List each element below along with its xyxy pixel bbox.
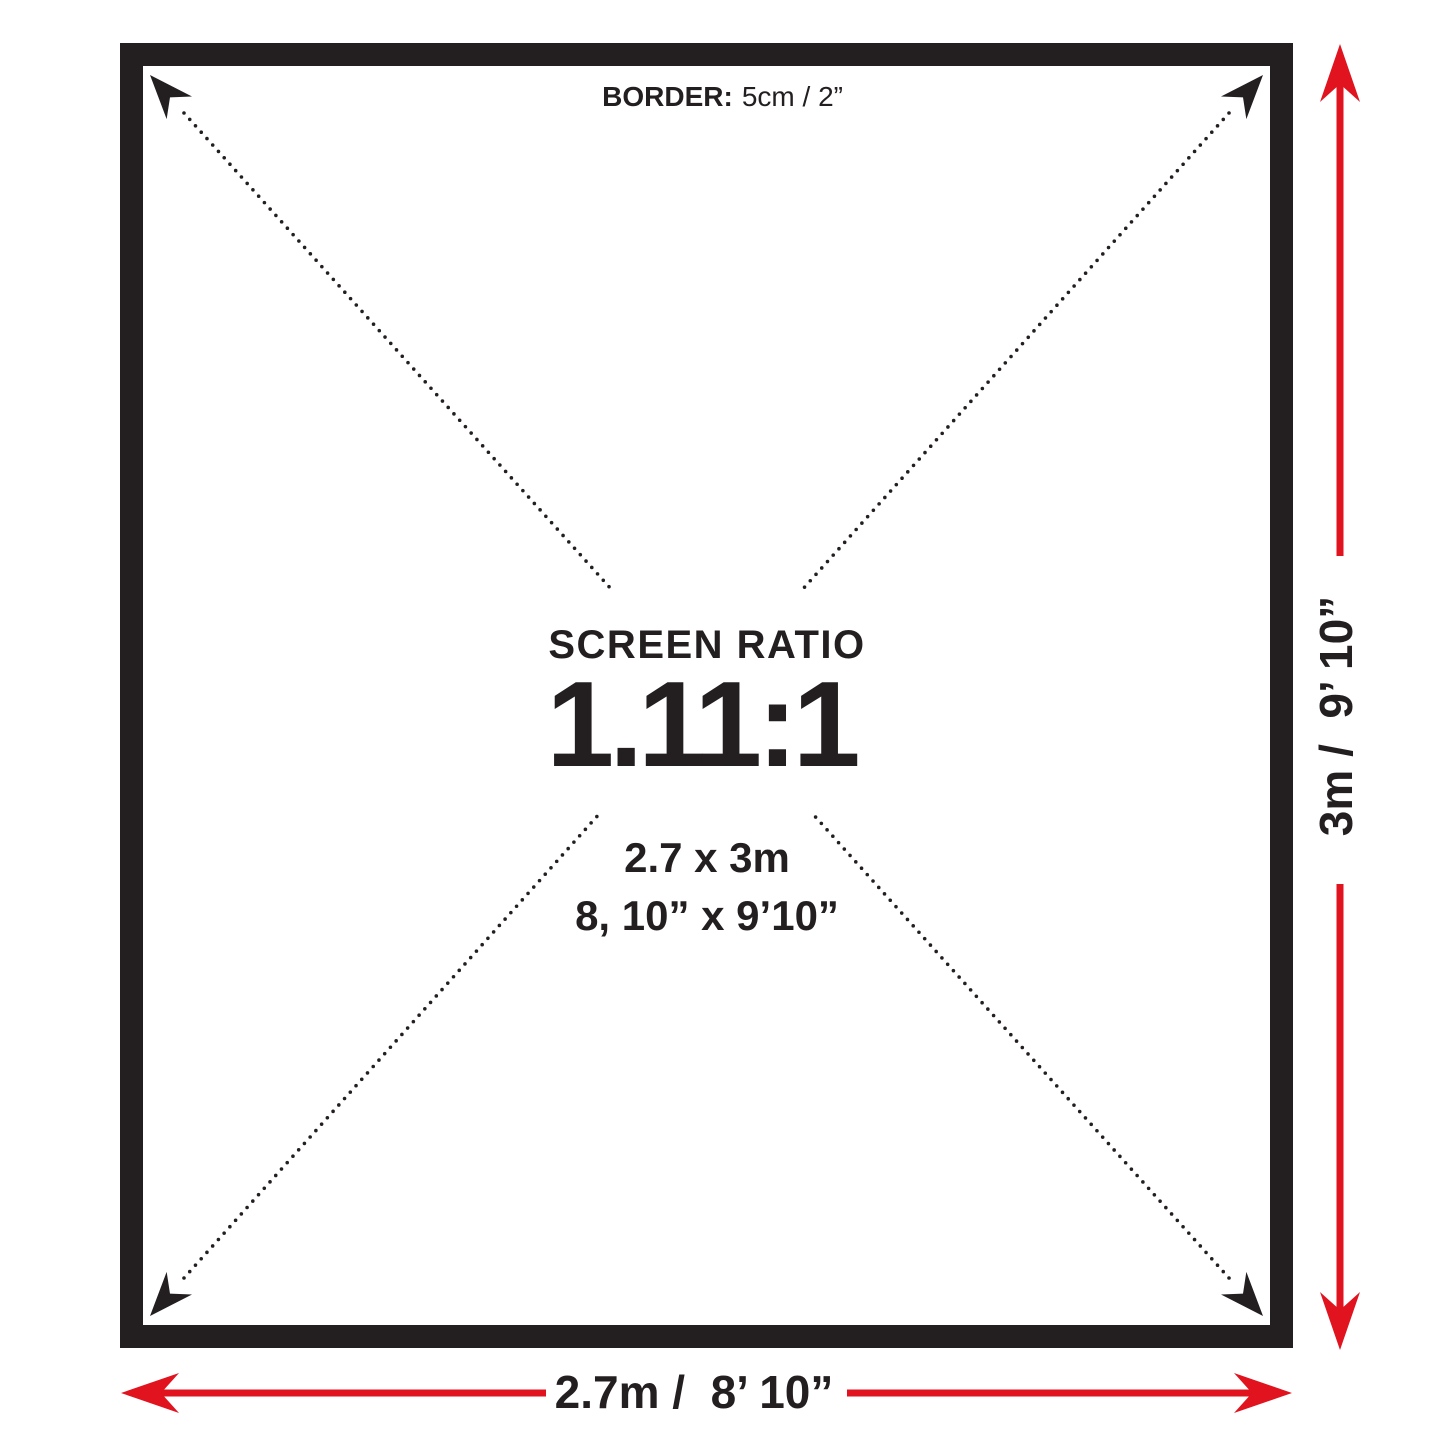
width-dimension-label: 2.7m / 8’ 10” [555, 1369, 834, 1415]
corner-arrowhead-bottom-left-icon [137, 1272, 192, 1327]
height-dimension-label: 3m / 9’ 10” [1313, 596, 1359, 836]
border-size-label: BORDER:5cm / 2” [571, 55, 843, 139]
screen-dimension-diagram: BORDER:5cm / 2” SCREEN RATIO 1.11:1 2.7 … [0, 0, 1445, 1445]
border-size-label-value: 5cm / 2” [742, 81, 843, 112]
diagonal-line-bottom-right [812, 813, 1229, 1278]
screen-size-metric: 2.7 x 3m [624, 837, 790, 879]
corner-arrowhead-bottom-right-icon [1221, 1272, 1276, 1327]
diagonal-line-top-left [184, 113, 612, 590]
screen-ratio-value: 1.11:1 [546, 663, 855, 785]
corner-arrowhead-top-left-icon [137, 64, 192, 119]
diagonal-line-top-right [802, 113, 1229, 590]
border-size-label-key: BORDER: [602, 81, 733, 112]
diagonal-line-bottom-left [184, 813, 600, 1278]
corner-arrowhead-top-right-icon [1221, 64, 1276, 119]
screen-size-imperial: 8, 10” x 9’10” [575, 895, 839, 937]
